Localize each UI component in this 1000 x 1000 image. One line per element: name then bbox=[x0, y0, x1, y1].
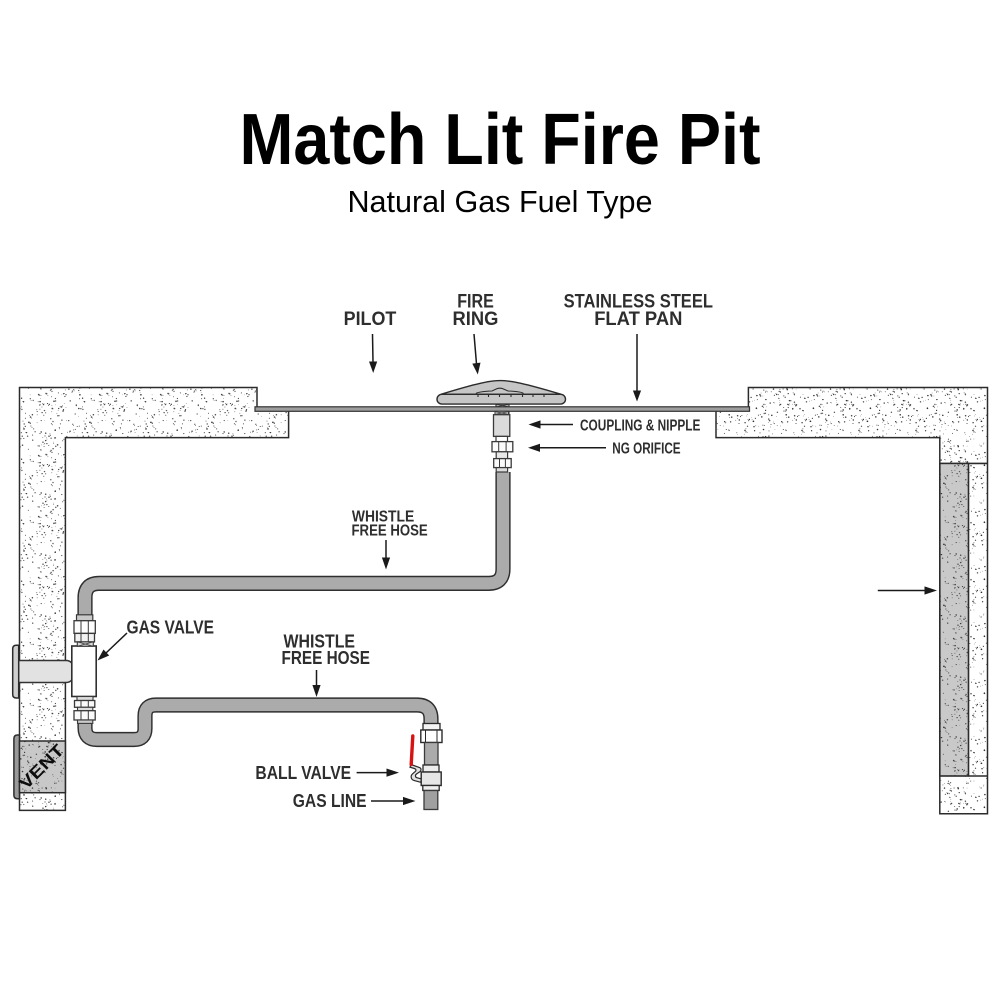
svg-text:FREE HOSE: FREE HOSE bbox=[352, 523, 428, 540]
svg-text:NG ORIFICE: NG ORIFICE bbox=[612, 440, 681, 457]
svg-text:BALL VALVE: BALL VALVE bbox=[255, 763, 351, 783]
svg-text:PILOT: PILOT bbox=[344, 309, 397, 330]
svg-text:FREE HOSE: FREE HOSE bbox=[282, 648, 371, 668]
svg-text:GAS VALVE: GAS VALVE bbox=[127, 618, 215, 638]
svg-text:Natural Gas Fuel Type: Natural Gas Fuel Type bbox=[348, 184, 653, 219]
svg-text:Match Lit Fire Pit: Match Lit Fire Pit bbox=[240, 100, 761, 180]
svg-text:RING: RING bbox=[453, 309, 499, 330]
svg-text:COUPLING & NIPPLE: COUPLING & NIPPLE bbox=[580, 418, 701, 435]
svg-text:FLAT PAN: FLAT PAN bbox=[594, 309, 682, 330]
svg-text:GAS LINE: GAS LINE bbox=[293, 791, 367, 811]
